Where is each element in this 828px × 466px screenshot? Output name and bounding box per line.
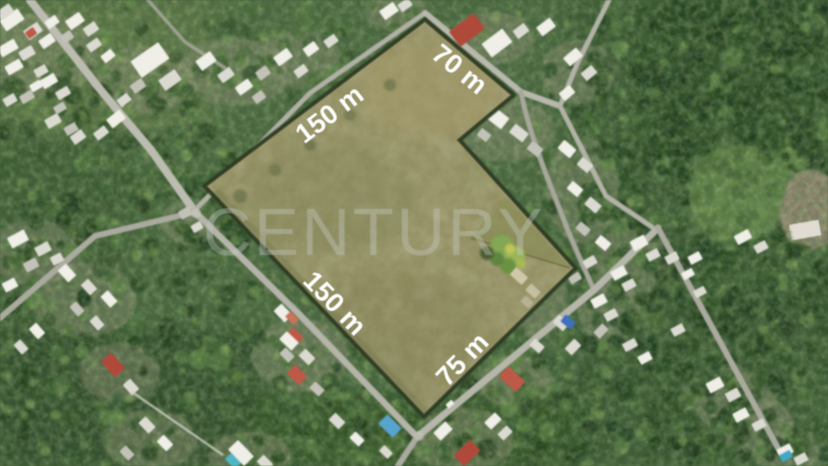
svg-text:CENTURY: CENTURY: [203, 195, 545, 270]
